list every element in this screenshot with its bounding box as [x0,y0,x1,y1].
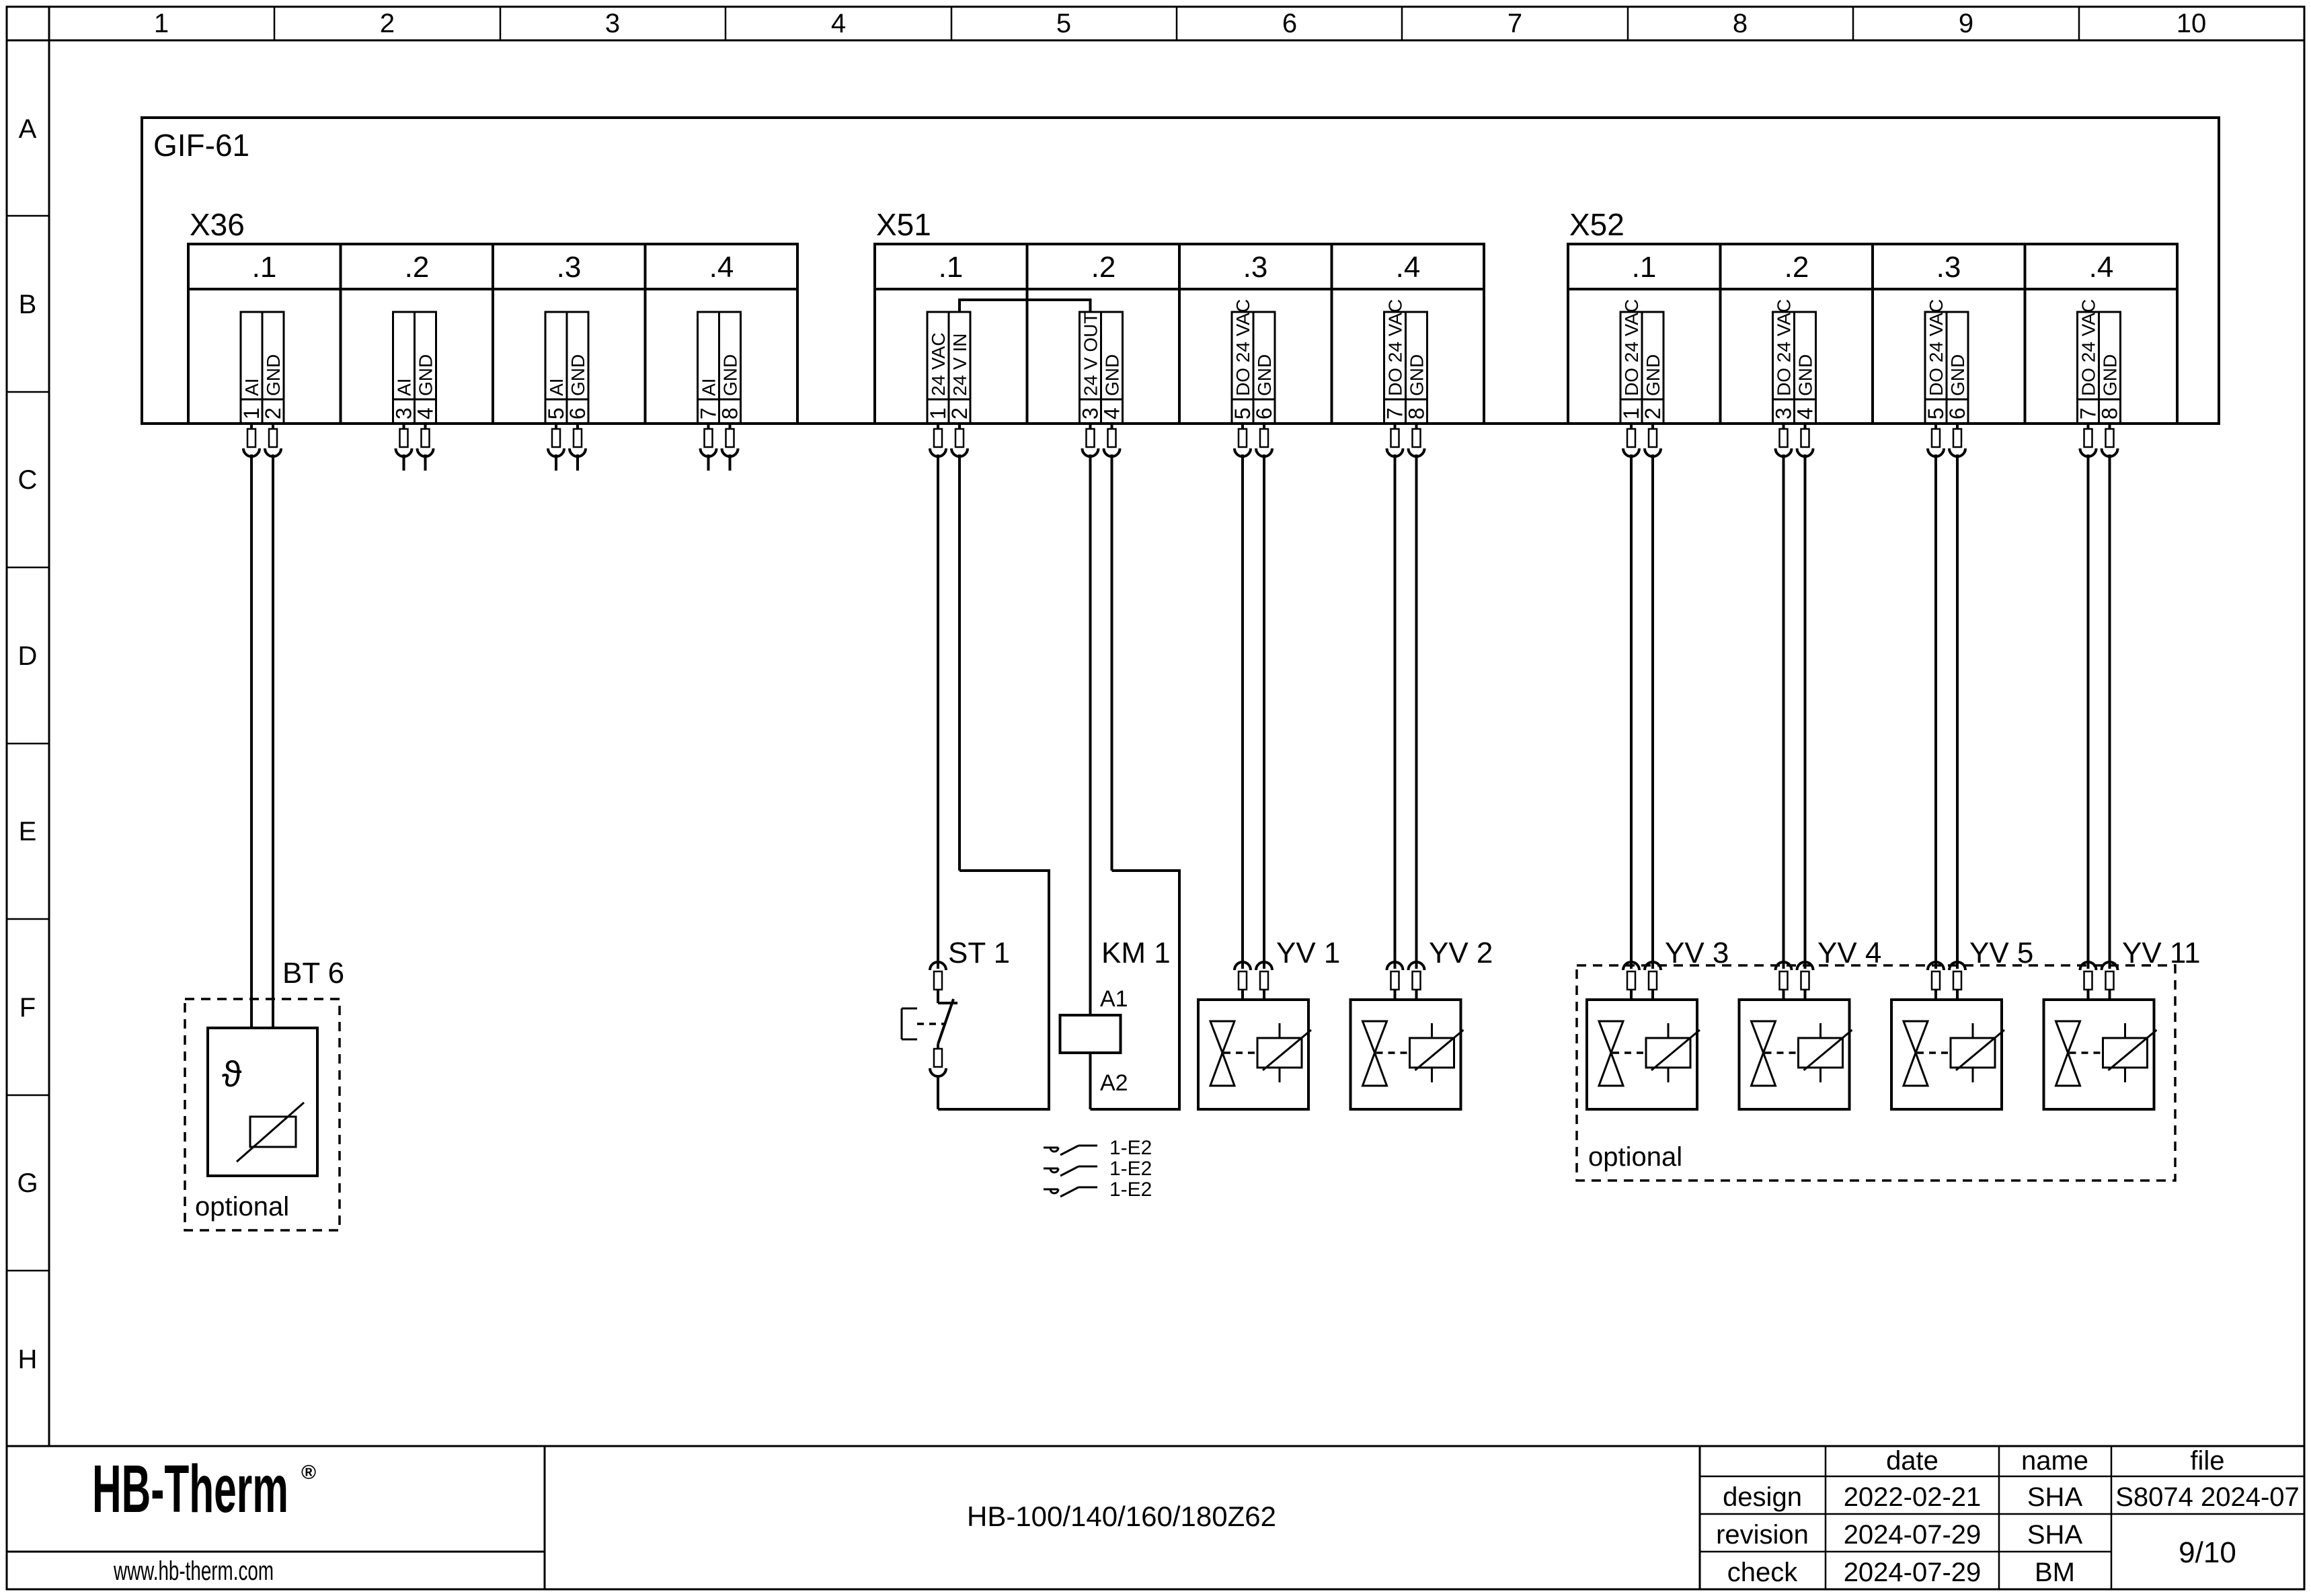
pin-label: GND [567,354,588,396]
pin-number: 2 [261,407,285,420]
revision-date: 2024-07-29 [1844,1520,1982,1550]
pin-label: GND [263,354,284,396]
pin-number: 6 [1945,407,1969,420]
pin-number: 3 [1772,407,1796,420]
x36-section: .3 [557,251,582,284]
yv1-label: YV 1 [1276,936,1340,969]
col-label: 5 [1056,9,1071,38]
connector-x51: X51 .1 .2 .3 .4 24 VAC 24 V IN 24 V OUT … [875,207,1484,456]
valve-yv3: YV 3 [1587,454,1729,1109]
pin-label: AI [241,378,262,396]
pin-label: GND [2100,354,2121,396]
pin-number: 5 [544,407,568,420]
column-ruler: 1 2 3 4 5 6 7 8 9 10 [7,7,2304,40]
check-name: BM [2035,1558,2075,1587]
connector-x52: X52 .1 .2 .3 .4 DO 24 VAC GND DO 24 VAC … [1568,207,2177,456]
pin-number: 6 [1252,407,1276,420]
design-name: SHA [2027,1482,2083,1512]
km1-label: KM 1 [1101,936,1171,969]
pin-number: 7 [1383,407,1407,420]
pin-label: 24 V OUT [1081,313,1101,396]
row-label: F [19,993,36,1023]
valve-yv4: YV 4 [1739,454,1882,1109]
x52-section: .1 [1632,251,1657,284]
connector-x36-label: X36 [190,207,245,242]
titleblock: HB-Therm ® www.hb-therm.com HB-100/140/1… [7,1446,2304,1589]
row-label: D [18,641,38,671]
bt6-sensor: BT 6 ϑ optional [185,454,344,1230]
x51-internal-jumper [959,300,1091,312]
contactor-coil-icon [1060,1015,1121,1053]
x36-section: .4 [709,251,734,284]
pin-label: DO 24 VAC [1926,299,1947,396]
yv4-label: YV 4 [1817,936,1881,969]
x51-section: .4 [1396,251,1421,284]
row-label: B [19,290,37,319]
pin-label: DO 24 VAC [2078,299,2099,396]
website-link[interactable]: www.hb-therm.com [113,1556,274,1586]
design-date: 2022-02-21 [1844,1482,1982,1512]
bt6-label: BT 6 [282,957,344,990]
hbtherm-logo: HB-Therm ® [92,1451,316,1527]
nc-contact-icon [938,999,957,1044]
st1-thermostat: ST 1 [902,454,1049,1109]
pin-number: 8 [2098,407,2122,420]
contact-ref-label: 1-E2 [1109,1179,1152,1201]
pin-number: 8 [718,407,742,420]
page-number: 9/10 [2179,1536,2236,1569]
pin-label: GND [1947,354,1968,396]
pin-number: 3 [1079,407,1103,420]
pin-number: 5 [1230,407,1255,420]
bt6-optional-label: optional [195,1192,289,1222]
row-label: G [17,1168,38,1198]
valve-yv11: YV 11 [2044,454,2201,1109]
row-label-revision: revision [1716,1520,1809,1550]
module-label: GIF-61 [153,128,249,163]
col-label: 10 [2177,9,2207,38]
pin-label: GND [416,354,436,396]
col-label: 2 [380,9,395,38]
yv5-label: YV 5 [1969,936,2033,969]
file-number: S8074 2024-07 [2115,1482,2300,1512]
pin-number: 1 [239,407,264,420]
pin-number: 5 [1924,407,1948,420]
x36-section: .1 [252,251,277,284]
brand-wordmark: HB-Therm [92,1451,288,1527]
col-header-date: date [1886,1446,1938,1476]
pin-label: GND [720,354,741,396]
col-header-file: file [2190,1446,2224,1476]
col-label: 8 [1733,9,1748,38]
km1-contactor: KM 1 A1 A2 1-E2 1-E2 1-E2 [1044,454,1179,1201]
row-label: A [19,114,37,144]
pin-number: 1 [1619,407,1643,420]
pin-label: DO 24 VAC [1385,299,1406,396]
pin-number: 4 [1100,407,1124,420]
col-label: 9 [1959,9,1973,38]
pin-number: 7 [697,407,721,420]
pin-number: 4 [1793,407,1817,420]
pin-label: DO 24 VAC [1621,299,1642,396]
pin-number: 1 [926,407,950,420]
col-header-name: name [2021,1446,2088,1476]
km1-a1-label: A1 [1100,986,1128,1012]
pin-number: 7 [2076,407,2101,420]
row-ruler: A B C D E F G H [7,7,49,1446]
valves-optional-box: optional [1577,965,2175,1181]
pin-label: GND [1643,354,1663,396]
connector-x36: X36 .1 .2 .3 .4 AI GND AI GND AI GND AI … [188,207,797,471]
contact-ref-label: 1-E2 [1109,1158,1152,1180]
x51-section: .3 [1243,251,1268,284]
pin-label: GND [1795,354,1816,396]
pin-label: AI [699,378,719,396]
row-label-check: check [1727,1558,1798,1587]
col-label: 3 [605,9,620,38]
col-label: 4 [831,9,846,38]
x36-section: .2 [405,251,430,284]
pin-label: DO 24 VAC [1232,299,1253,396]
pin-label: 24 V IN [949,333,970,396]
pin-number: 6 [565,407,590,420]
row-label: E [19,817,37,846]
theta-icon: ϑ [222,1054,242,1094]
col-label: 1 [154,9,169,38]
schematic-canvas: 1 2 3 4 5 6 7 8 9 10 A B C D E F G H GIF… [0,0,2311,1596]
connector-x51-label: X51 [876,207,931,242]
schematic-page: 1 2 3 4 5 6 7 8 9 10 A B C D E F G H GIF… [0,0,2311,1596]
model-designation: HB-100/140/160/180Z62 [967,1501,1276,1532]
km1-contact-references: 1-E2 1-E2 1-E2 [1044,1137,1152,1201]
yv11-label: YV 11 [2122,936,2201,969]
thermistor-icon [250,1117,296,1147]
x51-section: .2 [1091,251,1116,284]
registered-mark-icon: ® [301,1462,316,1484]
x52-section: .4 [2089,251,2114,284]
pin-number: 2 [1641,407,1665,420]
x51-section: .1 [939,251,964,284]
connector-x52-label: X52 [1569,207,1624,242]
km1-a2-label: A2 [1100,1070,1128,1096]
pin-number: 2 [947,407,972,420]
pin-label: AI [546,378,567,396]
pin-number: 4 [414,407,438,420]
valve-yv1: YV 1 [1198,454,1340,1109]
yv2-label: YV 2 [1429,936,1493,969]
pin-label: GND [1254,354,1275,396]
row-label: C [18,465,38,495]
check-date: 2024-07-29 [1844,1558,1982,1587]
pin-label: 24 VAC [928,333,949,396]
yv3-label: YV 3 [1665,936,1729,969]
row-label: H [18,1345,38,1374]
valve-yv5: YV 5 [1891,454,2033,1109]
valves-optional-label: optional [1588,1142,1682,1172]
contact-ref-label: 1-E2 [1109,1137,1152,1159]
col-label: 7 [1507,9,1522,38]
pin-label: GND [1407,354,1427,396]
pin-label: GND [1102,354,1123,396]
x52-section: .3 [1936,251,1961,284]
st1-label: ST 1 [948,936,1010,969]
row-label-design: design [1723,1482,1802,1512]
revision-name: SHA [2027,1520,2083,1550]
x52-section: .2 [1785,251,1809,284]
thermal-actuator-icon [902,1008,945,1039]
titleblock-table: date name file design 2022-02-21 SHA S80… [1700,1446,2304,1589]
pin-number: 8 [1405,407,1429,420]
col-label: 6 [1282,9,1297,38]
pin-label: DO 24 VAC [1774,299,1795,396]
valve-yv2: YV 2 [1351,454,1493,1109]
pin-number: 3 [392,407,416,420]
pin-label: AI [394,378,415,396]
